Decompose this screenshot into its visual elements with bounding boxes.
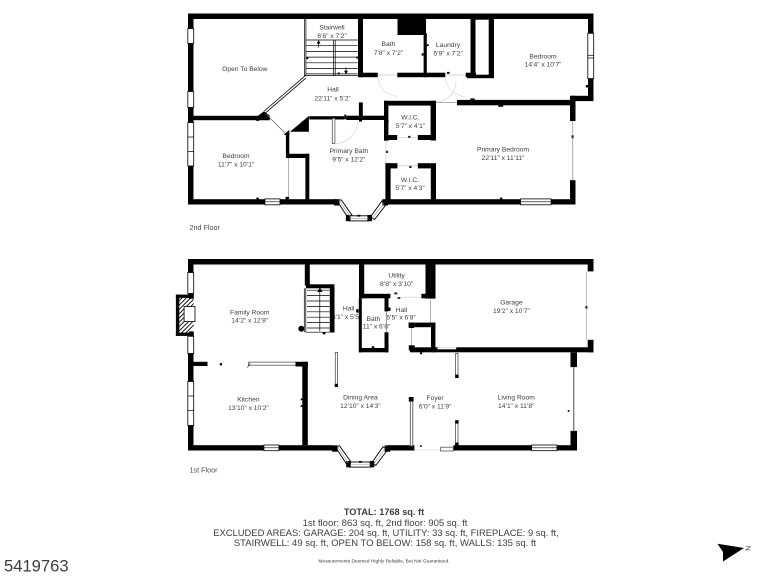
svg-text:W.I.C.: W.I.C. (401, 177, 419, 184)
svg-text:9’5” x 12’2”: 9’5” x 12’2” (332, 156, 365, 163)
svg-text:N: N (744, 546, 751, 551)
svg-text:STAIRWELL: 49 sq. ft, OPEN TO: STAIRWELL: 49 sq. ft, OPEN TO BELOW: 158… (234, 538, 537, 549)
svg-text:EXCLUDED AREAS: GARAGE: 204 sq: EXCLUDED AREAS: GARAGE: 204 sq. ft, UTIL… (213, 527, 558, 538)
svg-text:5’5” x 6’8”: 5’5” x 6’8” (386, 315, 415, 322)
svg-text:19’2” x 10’7”: 19’2” x 10’7” (493, 308, 530, 315)
svg-text:Bath: Bath (367, 316, 381, 323)
svg-text:Utility: Utility (388, 273, 405, 280)
svg-text:3’1” x 5’5”: 3’1” x 5’5” (332, 314, 361, 321)
svg-text:Hall: Hall (327, 87, 339, 94)
svg-text:14’4” x 10’7”: 14’4” x 10’7” (525, 61, 562, 68)
svg-text:Primary Bedroom: Primary Bedroom (477, 147, 529, 154)
svg-text:Stairwell: Stairwell (319, 24, 345, 31)
svg-text:Kitchen: Kitchen (237, 397, 260, 404)
svg-text:Measurements Deemed Highly Rel: Measurements Deemed Highly Reliable, But… (318, 558, 449, 564)
svg-text:Garage: Garage (500, 300, 523, 307)
svg-text:Laundry: Laundry (436, 42, 461, 49)
svg-text:14’2” x 12’8”: 14’2” x 12’8” (231, 318, 268, 325)
svg-text:Dining Area: Dining Area (343, 395, 378, 402)
svg-text:Living Room: Living Room (498, 395, 536, 402)
svg-text:Bedroom: Bedroom (222, 153, 250, 160)
svg-text:13’10” x 10’2”: 13’10” x 10’2” (228, 405, 269, 412)
svg-text:Family Room: Family Room (230, 309, 270, 316)
svg-text:Hall: Hall (343, 306, 355, 313)
svg-text:Primary Bath: Primary Bath (329, 148, 368, 155)
svg-text:6’0” x 11’9”: 6’0” x 11’9” (419, 404, 452, 411)
svg-text:TOTAL: 1768 sq. ft: TOTAL: 1768 sq. ft (344, 507, 424, 517)
svg-text:Open To Below: Open To Below (222, 66, 267, 73)
svg-text:Foyer: Foyer (427, 395, 445, 402)
svg-text:1st Floor: 1st Floor (190, 465, 219, 474)
svg-text:12’10” x 14’3”: 12’10” x 14’3” (340, 403, 381, 410)
svg-text:22’11” x 11’11”: 22’11” x 11’11” (482, 155, 525, 162)
svg-text:Hall: Hall (396, 307, 408, 314)
svg-text:5’7” x 4’3”: 5’7” x 4’3” (395, 185, 424, 192)
svg-text:11” x 6’8”: 11” x 6’8” (363, 324, 390, 331)
svg-text:2nd Floor: 2nd Floor (190, 223, 221, 232)
svg-text:22’11” x 5’2”: 22’11” x 5’2” (314, 96, 350, 103)
svg-text:5’7” x 4’1”: 5’7” x 4’1” (396, 123, 425, 130)
svg-text:Bedroom: Bedroom (529, 54, 557, 61)
svg-text:14’1” x 11’8”: 14’1” x 11’8” (498, 403, 534, 410)
svg-text:11’7” x 10’1”: 11’7” x 10’1” (218, 162, 254, 169)
svg-text:5’9” x 7’2”: 5’9” x 7’2” (433, 51, 462, 58)
svg-text:5419763: 5419763 (4, 557, 69, 576)
svg-text:Bath: Bath (382, 41, 396, 48)
svg-text:7’8” x 7’2”: 7’8” x 7’2” (374, 50, 403, 57)
svg-text:6’6” x 7’2”: 6’6” x 7’2” (317, 33, 346, 40)
svg-text:8’8” x 3’10”: 8’8” x 3’10” (380, 281, 413, 288)
svg-text:W.I.C.: W.I.C. (401, 115, 419, 122)
